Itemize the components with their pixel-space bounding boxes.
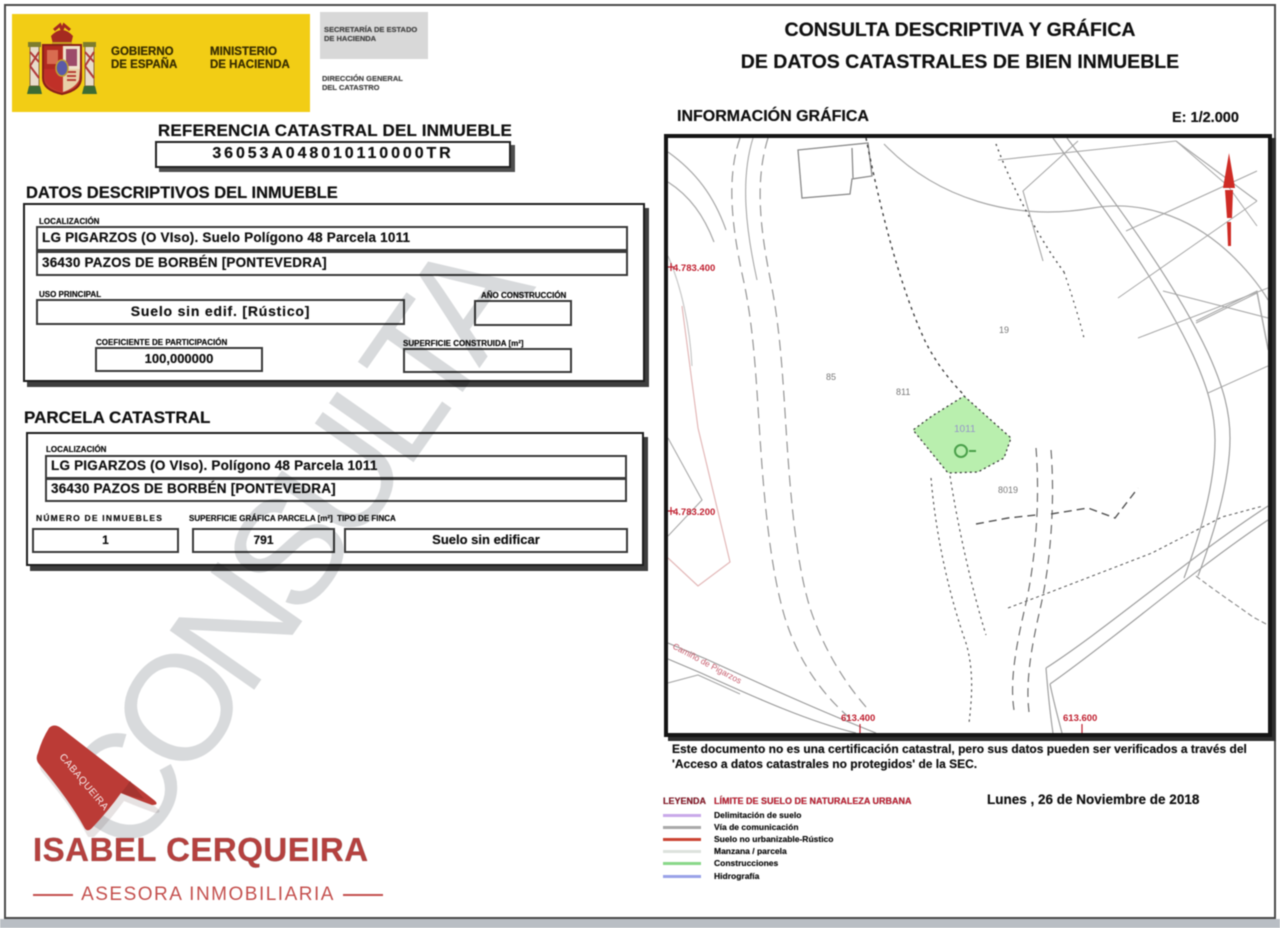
svg-text:811: 811 [896,387,910,397]
svg-text:19: 19 [999,325,1009,335]
svg-text:613.400: 613.400 [841,713,875,724]
svg-text:613.600: 613.600 [1063,713,1097,724]
svg-text:1011: 1011 [954,424,976,435]
svg-text:4.783.400: 4.783.400 [673,263,715,274]
svg-text:8019: 8019 [998,485,1018,495]
svg-text:4.783.200: 4.783.200 [673,507,715,518]
svg-text:85: 85 [826,372,836,382]
